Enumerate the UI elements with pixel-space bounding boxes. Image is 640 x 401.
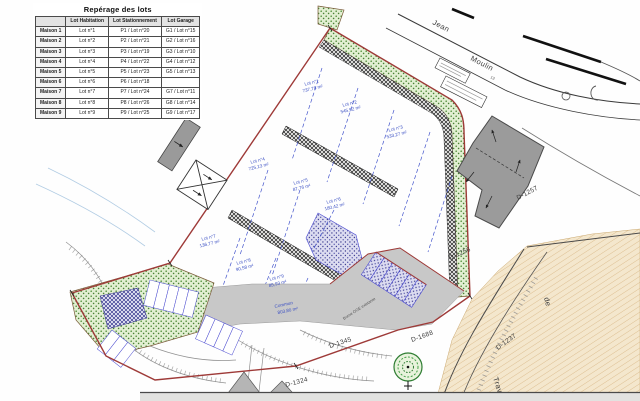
table-header-row: Lot Habitation Lot Stationnement Lot Gar… (36, 17, 200, 27)
cell-habitation: Lot n°4 (66, 57, 109, 67)
cell-garage (161, 78, 200, 88)
cell-maison: Maison 9 (36, 108, 66, 118)
building-d1257 (457, 116, 544, 228)
cell-garage: G3 / Lot n°10 (161, 47, 200, 57)
cell-garage: G5 / Lot n°13 (161, 67, 200, 77)
cell-stationnement: P1 / Lot n°20 (109, 27, 162, 37)
cell-stationnement: P4 / Lot n°22 (109, 57, 162, 67)
cell-garage: G8 / Lot n°14 (161, 98, 200, 108)
cell-maison: Maison 3 (36, 47, 66, 57)
cell-maison: Maison 4 (36, 57, 66, 67)
table-row: Maison 6 Lot n°6 P6 / Lot n°18 (36, 78, 200, 88)
cell-stationnement: P3 / Lot n°19 (109, 47, 162, 57)
cell-habitation: Lot n°7 (66, 88, 109, 98)
cell-habitation: Lot n°6 (66, 78, 109, 88)
street-label-jean: Jean (431, 18, 451, 34)
cell-garage: G4 / Lot n°12 (161, 57, 200, 67)
cell-stationnement: P2 / Lot n°21 (109, 37, 162, 47)
table-row: Maison 5 Lot n°5 P5 / Lot n°23 G5 / Lot … (36, 67, 200, 77)
cell-habitation: Lot n°3 (66, 47, 109, 57)
green-patch-north (318, 6, 344, 30)
cell-stationnement: P7 / Lot n°24 (109, 88, 162, 98)
cell-maison: Maison 7 (36, 88, 66, 98)
table-row: Maison 2 Lot n°2 P2 / Lot n°21 G2 / Lot … (36, 37, 200, 47)
cell-maison: Maison 1 (36, 27, 66, 37)
table-row: Maison 7 Lot n°7 P7 / Lot n°24 G7 / Lot … (36, 88, 200, 98)
lot-assignment-panel: Repérage des lots Lot Habitation Lot Sta… (33, 3, 202, 120)
header-stationnement: Lot Stationnement (109, 17, 162, 27)
cell-maison: Maison 6 (36, 78, 66, 88)
cell-maison: Maison 2 (36, 37, 66, 47)
cell-habitation: Lot n°1 (66, 27, 109, 37)
table-row: Maison 8 Lot n°8 P8 / Lot n°26 G8 / Lot … (36, 98, 200, 108)
table-title: Repérage des lots (35, 5, 200, 14)
cell-habitation: Lot n°8 (66, 98, 109, 108)
table-row: Maison 1 Lot n°1 P1 / Lot n°20 G1 / Lot … (36, 27, 200, 37)
curve-mark-icon (591, 86, 598, 100)
cell-garage: G7 / Lot n°11 (161, 88, 200, 98)
cell-stationnement: P5 / Lot n°23 (109, 67, 162, 77)
parcel-d1688: D-1688 (410, 329, 434, 344)
cell-stationnement: P8 / Lot n°26 (109, 98, 162, 108)
cell-habitation: Lot n°5 (66, 67, 109, 77)
header-garage: Lot Garage (161, 17, 200, 27)
cell-stationnement: P6 / Lot n°18 (109, 78, 162, 88)
street-label-moulin: Moulin (469, 54, 495, 73)
tree-icon (394, 353, 422, 390)
cell-stationnement: P9 / Lot n°25 (109, 108, 162, 118)
cell-garage: G2 / Lot n°16 (161, 37, 200, 47)
cell-habitation: Lot n°9 (66, 108, 109, 118)
table-row: Maison 3 Lot n°3 P3 / Lot n°19 G3 / Lot … (36, 47, 200, 57)
parcel-d1324: D-1324 (285, 376, 309, 389)
site-plan-sheet: Jean Moulin 13 (0, 0, 640, 401)
header-maison (36, 17, 66, 27)
sheet-frame-bottom (140, 393, 640, 401)
lot-assignment-table: Lot Habitation Lot Stationnement Lot Gar… (35, 16, 200, 119)
table-row: Maison 9 Lot n°9 P9 / Lot n°25 G9 / Lot … (36, 108, 200, 118)
cell-garage: G9 / Lot n°17 (161, 108, 200, 118)
cell-maison: Maison 8 (36, 98, 66, 108)
outbuilding-west (158, 118, 227, 210)
table-row: Maison 4 Lot n°4 P4 / Lot n°22 G4 / Lot … (36, 57, 200, 67)
cell-habitation: Lot n°2 (66, 37, 109, 47)
cell-garage: G1 / Lot n°15 (161, 27, 200, 37)
street-number-label: 13 (490, 74, 497, 81)
header-habitation: Lot Habitation (66, 17, 109, 27)
cell-maison: Maison 5 (36, 67, 66, 77)
